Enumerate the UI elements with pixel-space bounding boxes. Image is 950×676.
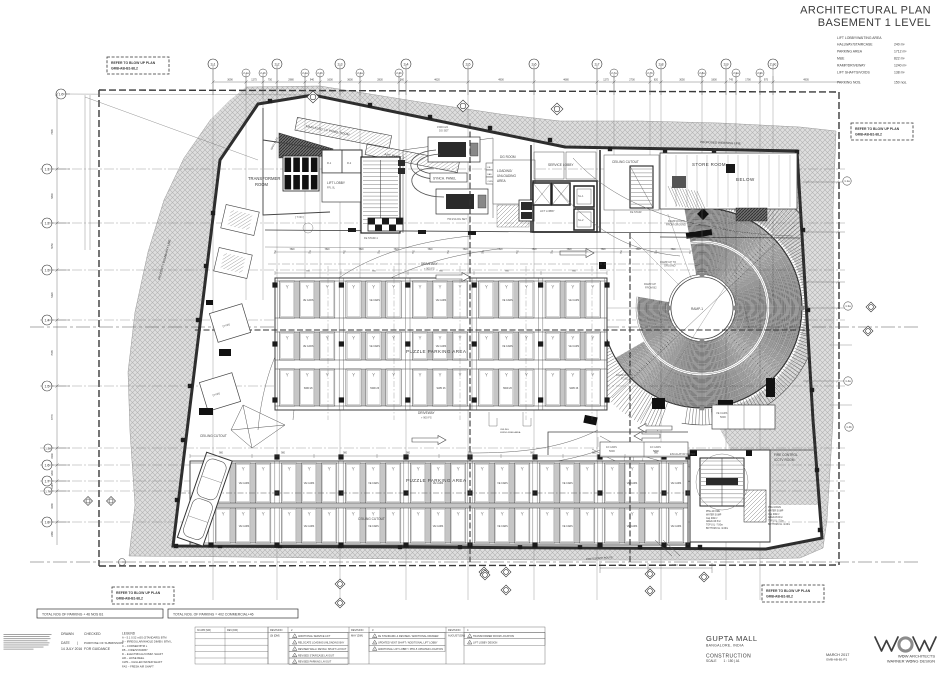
svg-text:FAS: FAS — [488, 173, 493, 176]
svg-text:1.4b: 1.4b — [846, 425, 852, 429]
svg-text:240 m²: 240 m² — [894, 43, 905, 47]
svg-text:2980: 2980 — [288, 79, 294, 82]
svg-text:D – ELECTRICAL/COMM. SHAFT: D – ELECTRICAL/COMM. SHAFT — [122, 652, 163, 656]
svg-text:REVISION: REVISION — [351, 628, 364, 632]
svg-text:2.1b: 2.1b — [260, 71, 266, 75]
svg-text:DG ROOM: DG ROOM — [500, 155, 516, 159]
svg-text:1.7: 1.7 — [45, 479, 50, 483]
svg-text:LIFT SHAFTS/VOIDS: LIFT SHAFTS/VOIDS — [837, 70, 870, 74]
svg-text:LIFT LOBBY: LIFT LOBBY — [540, 209, 555, 213]
svg-text:UPDATED VENT SHAFT / ADDITIONA: UPDATED VENT SHAFT / ADDITIONAL LIFT LOB… — [378, 642, 438, 645]
svg-text:RAMP/DRIVEWAY: RAMP/DRIVEWAY — [837, 63, 866, 67]
svg-text:10 CARS: 10 CARS — [650, 445, 661, 449]
svg-text:BANGALORE, INDIA: BANGALORE, INDIA — [706, 644, 744, 648]
svg-text:DG SET: DG SET — [439, 129, 449, 133]
svg-text:1800: 1800 — [51, 470, 54, 476]
svg-text:1.4a: 1.4a — [845, 379, 851, 383]
svg-text:ARCHITECTURAL PLAN: ARCHITECTURAL PLAN — [800, 5, 931, 17]
svg-text:3: 3 — [374, 636, 375, 638]
svg-text:LEGEND: LEGEND — [122, 632, 136, 636]
svg-text:REFER TO BLOW UP PLAN: REFER TO BLOW UP PLAN — [855, 127, 900, 131]
svg-text:14 JULY 2016: 14 JULY 2016 — [61, 647, 82, 651]
svg-text:VE CARS: VE CARS — [304, 482, 315, 485]
svg-text:2.2a: 2.2a — [302, 71, 308, 75]
svg-text:VE CARS: VE CARS — [368, 525, 379, 528]
svg-text:REVISION: REVISION — [448, 628, 461, 632]
svg-text:(0) [DM]: (0) [DM] — [270, 634, 280, 638]
svg-text:AREA: AREA — [497, 179, 507, 183]
svg-text:SL-1: SL-1 — [578, 194, 584, 198]
svg-text:1275: 1275 — [251, 79, 257, 82]
svg-text:1940: 1940 — [51, 453, 54, 459]
svg-text:MARCH 2017: MARCH 2017 — [826, 653, 849, 657]
svg-text:2.9a: 2.9a — [733, 71, 739, 75]
svg-text:2460: 2460 — [51, 531, 54, 537]
svg-text:PARKING AREA: PARKING AREA — [837, 50, 863, 54]
svg-text:GMB-AB-B1-P1: GMB-AB-B1-P1 — [826, 658, 848, 662]
svg-text:1790: 1790 — [745, 79, 751, 82]
svg-text:VE CARS: VE CARS — [502, 345, 513, 348]
svg-text:FROM GROUND: FROM GROUND — [666, 223, 686, 227]
svg-text:5800: 5800 — [51, 193, 54, 199]
svg-text:BASEMENT 1 LEVEL: BASEMENT 1 LEVEL — [818, 17, 931, 29]
svg-text:SCALE 1 : 150 | A1: SCALE 1 : 150 | A1 — [706, 659, 740, 663]
svg-text:ADDITIONAL LIFT LOBBY / PHD-5: ADDITIONAL LIFT LOBBY / PHD-5 UPDATED LO… — [378, 648, 443, 651]
svg-text:370: 370 — [618, 563, 623, 567]
svg-text:1.1: 1.1 — [45, 167, 50, 171]
svg-text:3: 3 — [374, 643, 375, 645]
svg-text:VE CARS: VE CARS — [239, 482, 250, 485]
svg-text:3600: 3600 — [347, 79, 353, 82]
svg-text:2: 2 — [294, 656, 295, 658]
svg-text:PHE-10 FIRE: PHE-10 FIRE — [706, 511, 720, 513]
svg-text:1712 m²: 1712 m² — [894, 50, 907, 54]
svg-text:FE STANDARD–4 REVISED / ADDITI: FE STANDARD–4 REVISED / ADDITIONAL DRAWE… — [378, 635, 439, 638]
svg-text:7345: 7345 — [51, 129, 54, 135]
svg-text:6770: 6770 — [51, 414, 54, 420]
svg-text:7820: 7820 — [566, 249, 572, 251]
svg-text:5420: 5420 — [51, 292, 54, 298]
svg-text:1.3a: 1.3a — [845, 304, 851, 308]
svg-text:1.3: 1.3 — [45, 268, 50, 272]
svg-text:1600: 1600 — [327, 79, 333, 82]
svg-text:7820: 7820 — [462, 249, 468, 251]
svg-text:HALLWAY/STAIRCASE: HALLWAY/STAIRCASE — [837, 43, 873, 47]
svg-text:FFL 0L: FFL 0L — [327, 186, 336, 190]
svg-text:7820: 7820 — [427, 249, 433, 251]
svg-text:|: | — [77, 641, 78, 645]
svg-text:3090: 3090 — [227, 79, 233, 82]
svg-text:1.7a: 1.7a — [45, 489, 51, 493]
svg-text:2.7a: 2.7a — [611, 71, 617, 75]
svg-text:AREA=23.5m²: AREA=23.5m² — [706, 520, 721, 523]
svg-text:975: 975 — [764, 79, 769, 82]
svg-text:SWING FREE AREA: SWING FREE AREA — [500, 431, 521, 434]
svg-text:M&E: M&E — [837, 57, 845, 61]
svg-text:[ 7 NO ]: [ 7 NO ] — [295, 215, 304, 219]
svg-text:5050: 5050 — [51, 243, 54, 249]
svg-text:FB – FIRE/STANDBY: FB – FIRE/STANDBY — [122, 648, 148, 652]
svg-text:4: 4 — [469, 636, 470, 638]
svg-text:5600: 5600 — [720, 415, 726, 419]
svg-text:CHECKED: CHECKED — [84, 632, 101, 636]
svg-text:PURPOSE OF SUBMISSION: PURPOSE OF SUBMISSION — [84, 641, 123, 645]
svg-text:A – 5.1 0.52 mSS (STANDARD) BT: A – 5.1 0.52 mSS (STANDARD) BTM — [122, 636, 167, 640]
svg-text:2: 2 — [294, 636, 295, 638]
svg-text:SWD 26: SWD 26 — [569, 387, 579, 390]
svg-text:LIFT LOBBY/WAITING AREA: LIFT LOBBY/WAITING AREA — [837, 36, 882, 40]
svg-text:SWD 26: SWD 26 — [370, 387, 380, 390]
svg-text:4410: 4410 — [672, 563, 678, 567]
svg-text:2.3a: 2.3a — [357, 71, 363, 75]
svg-text:UNLOADING: UNLOADING — [497, 174, 516, 178]
svg-text:FAS – FRESH AIR SHAFT: FAS – FRESH AIR SHAFT — [122, 664, 154, 668]
svg-text:2: 2 — [294, 643, 295, 645]
svg-text:GMB-AB-B1-BL2: GMB-AB-B1-BL2 — [116, 597, 143, 601]
svg-text:R-2: R-2 — [347, 161, 352, 165]
svg-text:RAMP-UP TO: RAMP-UP TO — [660, 260, 676, 264]
svg-text:4: 4 — [469, 643, 470, 645]
svg-text:PUZZLE PARKING AREA: PUZZLE PARKING AREA — [406, 349, 467, 354]
svg-text:FOR GUIDANCE: FOR GUIDANCE — [84, 647, 111, 651]
svg-text:VE CARS: VE CARS — [239, 525, 250, 528]
svg-text:VE CARS: VE CARS — [497, 525, 508, 528]
svg-text:LIFT LOBBY DESIGN: LIFT LOBBY DESIGN — [473, 642, 498, 645]
svg-text:4620: 4620 — [434, 79, 440, 82]
svg-text:RAMP-UP: RAMP-UP — [644, 282, 656, 286]
svg-text:2700: 2700 — [629, 79, 635, 82]
svg-text:VE CARS: VE CARS — [569, 299, 580, 302]
svg-text:3050: 3050 — [679, 79, 685, 82]
svg-text:10 CARS: 10 CARS — [606, 445, 617, 449]
svg-text:DRIVEWAY: DRIVEWAY — [418, 411, 436, 415]
svg-text:1.5a: 1.5a — [45, 446, 51, 450]
svg-text:VE CARS: VE CARS — [627, 525, 638, 528]
svg-text:1500 kVA: 1500 kVA — [437, 125, 448, 129]
svg-text:VE CARS: VE CARS — [303, 345, 314, 348]
svg-text:ADDITIONAL SERVICE LIFT: ADDITIONAL SERVICE LIFT — [298, 635, 331, 638]
svg-text:1.8: 1.8 — [45, 520, 50, 524]
svg-text:VE CARS: VE CARS — [502, 299, 513, 302]
svg-text:PARKING NOS.: PARKING NOS. — [837, 80, 861, 84]
svg-text:7820: 7820 — [393, 249, 399, 251]
svg-text:WATER SUMP: WATER SUMP — [706, 513, 722, 516]
svg-text:CWS – CHILLED WATER SHAFT: CWS – CHILLED WATER SHAFT — [122, 660, 163, 664]
svg-text:ESCALATOR WD NO: ESCALATOR WD NO — [670, 452, 695, 456]
svg-text:VE CARS: VE CARS — [671, 482, 682, 485]
svg-text:1.4: 1.4 — [45, 318, 50, 322]
svg-text:VE CARS: VE CARS — [368, 482, 379, 485]
svg-text:7820: 7820 — [324, 249, 330, 251]
svg-text:SYNCH. PANEL: SYNCH. PANEL — [433, 177, 456, 181]
svg-text:FIRE CONTROL: FIRE CONTROL — [774, 453, 798, 457]
svg-text:FROM B2: FROM B2 — [645, 286, 657, 290]
svg-text:822 m²: 822 m² — [894, 57, 905, 61]
svg-text:CEILING: CEILING — [500, 429, 509, 431]
svg-text:CEILING CUTOUT: CEILING CUTOUT — [612, 160, 639, 164]
svg-text:1.6: 1.6 — [45, 463, 50, 467]
svg-text:BOTTOM LVL -9.00m: BOTTOM LVL -9.00m — [706, 528, 728, 530]
svg-text:VE CARS: VE CARS — [562, 482, 573, 485]
svg-text:/CCTV ROOM: /CCTV ROOM — [774, 458, 795, 462]
svg-text:VE CARS: VE CARS — [436, 345, 447, 348]
svg-text:B – IRREGULAR/WHOLE DIMEN. BTM: B – IRREGULAR/WHOLE DIMEN. BTM L — [122, 640, 172, 644]
svg-text:TOTAL NOS. OF PARKING = 402 CO: TOTAL NOS. OF PARKING = 402 COMMERCIAL+4… — [173, 613, 254, 617]
svg-text:745: 745 — [729, 79, 734, 82]
svg-text:FE STAIR: FE STAIR — [630, 210, 642, 214]
svg-text:REFER TO BLOW UP PLAN: REFER TO BLOW UP PLAN — [111, 61, 156, 65]
svg-text:940: 940 — [310, 79, 315, 82]
svg-text:2.9b: 2.9b — [757, 71, 763, 75]
svg-text:138 m²: 138 m² — [894, 70, 905, 74]
svg-text:BOTTOM LVL -9.00m: BOTTOM LVL -9.00m — [768, 524, 790, 526]
svg-text:SWD 26: SWD 26 — [437, 387, 447, 390]
svg-text:TOP LVL -7.00m: TOP LVL -7.00m — [706, 525, 723, 527]
svg-text:VE CARS: VE CARS — [671, 525, 682, 528]
svg-text:DATE: DATE — [61, 641, 71, 645]
svg-text:GMB-AB-B1-BL2: GMB-AB-B1-BL2 — [766, 595, 793, 599]
svg-text:150 nos.: 150 nos. — [894, 80, 907, 84]
svg-text:TOTAL NOS OF PARKING + 46 NOS: TOTAL NOS OF PARKING + 46 NOS B1 — [42, 613, 104, 617]
svg-text:1.1a: 1.1a — [844, 179, 850, 183]
svg-text:RAMP-1: RAMP-1 — [691, 307, 703, 311]
svg-text:REVISED STAIRCASE LAYOUT: REVISED STAIRCASE LAYOUT — [298, 654, 335, 657]
svg-text:7820: 7820 — [497, 249, 503, 251]
svg-text:5600: 5600 — [609, 449, 615, 453]
svg-text:2.1a: 2.1a — [243, 71, 249, 75]
svg-text:CEILING CUTOUT: CEILING CUTOUT — [358, 517, 385, 521]
svg-text:4905: 4905 — [803, 79, 809, 82]
svg-text:GUPTA MALL: GUPTA MALL — [706, 634, 758, 643]
svg-text:SWD 26: SWD 26 — [503, 387, 513, 390]
svg-text:820: 820 — [654, 79, 659, 82]
svg-text:7820: 7820 — [600, 249, 606, 251]
svg-text:7095: 7095 — [51, 350, 54, 356]
svg-text:VE CARS: VE CARS — [562, 525, 573, 528]
svg-text:BELOW: BELOW — [736, 177, 755, 182]
svg-text:2.8a: 2.8a — [699, 71, 705, 75]
svg-text:VE CARS: VE CARS — [303, 299, 314, 302]
svg-text:C – CORNER BTM L: C – CORNER BTM L — [122, 644, 148, 648]
svg-text:750 kVA DG SET: 750 kVA DG SET — [447, 217, 467, 221]
svg-text:1800: 1800 — [711, 79, 717, 82]
svg-text:Cap 000m³: Cap 000m³ — [706, 517, 718, 520]
svg-text:1.5: 1.5 — [45, 384, 50, 388]
svg-text:SWD 26: SWD 26 — [304, 387, 314, 390]
svg-text:LOADING/: LOADING/ — [497, 169, 512, 173]
svg-text:TO B2: TO B2 — [621, 377, 629, 381]
svg-text:750: 750 — [268, 79, 273, 82]
svg-text:GMB-AB-B1-BL2: GMB-AB-B1-BL2 — [855, 133, 882, 137]
svg-text:REFER TO BLOW UP PLAN: REFER TO BLOW UP PLAN — [766, 589, 811, 593]
svg-text:STORE ROOM: STORE ROOM — [692, 162, 726, 167]
svg-text:RELOCATE LOADING/UNLOADING BAY: RELOCATE LOADING/UNLOADING BAY — [298, 642, 345, 645]
svg-text:REVISED WALL/ RETAIL/ SHAFT LA: REVISED WALL/ RETAIL/ SHAFT LAYOUT — [298, 648, 347, 651]
svg-text:4900: 4900 — [498, 79, 504, 82]
svg-text:ROOM: ROOM — [255, 182, 269, 187]
svg-text:7820: 7820 — [289, 249, 295, 251]
svg-text:VE CARS: VE CARS — [433, 525, 444, 528]
svg-text:GROUND: GROUND — [664, 264, 676, 268]
svg-text:3: 3 — [374, 649, 375, 651]
svg-text:PUZZLE PARKING AREA: PUZZLE PARKING AREA — [406, 478, 467, 483]
svg-text:REFER TO BLOW UP PLAN: REFER TO BLOW UP PLAN — [116, 591, 161, 595]
svg-text:VE CARS: VE CARS — [627, 482, 638, 485]
svg-text:RAMP-DOWN: RAMP-DOWN — [668, 219, 685, 223]
svg-text:TRANSFORMER ROOM LOCATION: TRANSFORMER ROOM LOCATION — [473, 635, 514, 638]
svg-text:7820: 7820 — [670, 249, 676, 251]
svg-text:1240 m²: 1240 m² — [894, 63, 907, 67]
svg-text:2830: 2830 — [377, 79, 383, 82]
svg-text:REVISED PARKING LAYOUT: REVISED PARKING LAYOUT — [298, 661, 332, 664]
svg-text:VE CARS: VE CARS — [569, 345, 580, 348]
svg-text:REV [DM]: REV [DM] — [227, 629, 238, 632]
svg-text:+ 900 FS: + 900 FS — [421, 416, 432, 420]
svg-text:560: 560 — [400, 79, 405, 82]
svg-text:30 APR [SM]: 30 APR [SM] — [197, 629, 211, 632]
svg-text:VE CARS: VE CARS — [369, 299, 380, 302]
svg-text:AUGUST [DM]: AUGUST [DM] — [448, 634, 465, 638]
svg-text:SL-2: SL-2 — [578, 218, 584, 222]
svg-text:CEILING CUTOUT: CEILING CUTOUT — [200, 434, 227, 438]
svg-text:FE STAIR-1: FE STAIR-1 — [364, 236, 378, 240]
svg-text:LIFT LOBBY: LIFT LOBBY — [327, 181, 346, 185]
svg-text:1.2: 1.2 — [45, 221, 50, 225]
svg-text:GMB-AB-B1-BL2: GMB-AB-B1-BL2 — [111, 67, 138, 71]
svg-text:MAY [DM]: MAY [DM] — [351, 634, 363, 638]
svg-text:2: 2 — [294, 662, 295, 664]
svg-text:HR – HOSE REEL: HR – HOSE REEL — [122, 656, 145, 660]
svg-text:VE CARS: VE CARS — [497, 482, 508, 485]
svg-text:1275: 1275 — [603, 79, 609, 82]
svg-text:2.2b: 2.2b — [317, 71, 323, 75]
svg-text:7820: 7820 — [531, 249, 537, 251]
svg-text:7820: 7820 — [358, 249, 364, 251]
svg-text:DRAWN: DRAWN — [61, 632, 74, 636]
svg-text:7820: 7820 — [635, 249, 641, 251]
svg-text:VE CARS: VE CARS — [304, 525, 315, 528]
svg-text:SERVICE LOBBY: SERVICE LOBBY — [548, 163, 574, 167]
svg-text:REVISION: REVISION — [270, 628, 283, 632]
svg-text:TRANSFORMER: TRANSFORMER — [248, 176, 280, 181]
svg-text:1.0: 1.0 — [59, 92, 64, 96]
svg-text:4680: 4680 — [563, 79, 569, 82]
svg-text:VE CARS: VE CARS — [436, 299, 447, 302]
svg-text:WARNER WONG DESIGN: WARNER WONG DESIGN — [887, 659, 935, 664]
svg-text:2.7b: 2.7b — [647, 71, 653, 75]
svg-text:+ 900 FS: + 900 FS — [424, 267, 435, 271]
svg-text:R-1: R-1 — [327, 161, 332, 165]
svg-text:3290: 3290 — [51, 503, 54, 509]
svg-text:CWS: CWS — [488, 181, 494, 183]
svg-text:2: 2 — [294, 649, 295, 651]
svg-text:VE CARS: VE CARS — [369, 345, 380, 348]
svg-text:VE CARS: VE CARS — [716, 411, 728, 415]
svg-text:2.3b: 2.3b — [396, 71, 402, 75]
